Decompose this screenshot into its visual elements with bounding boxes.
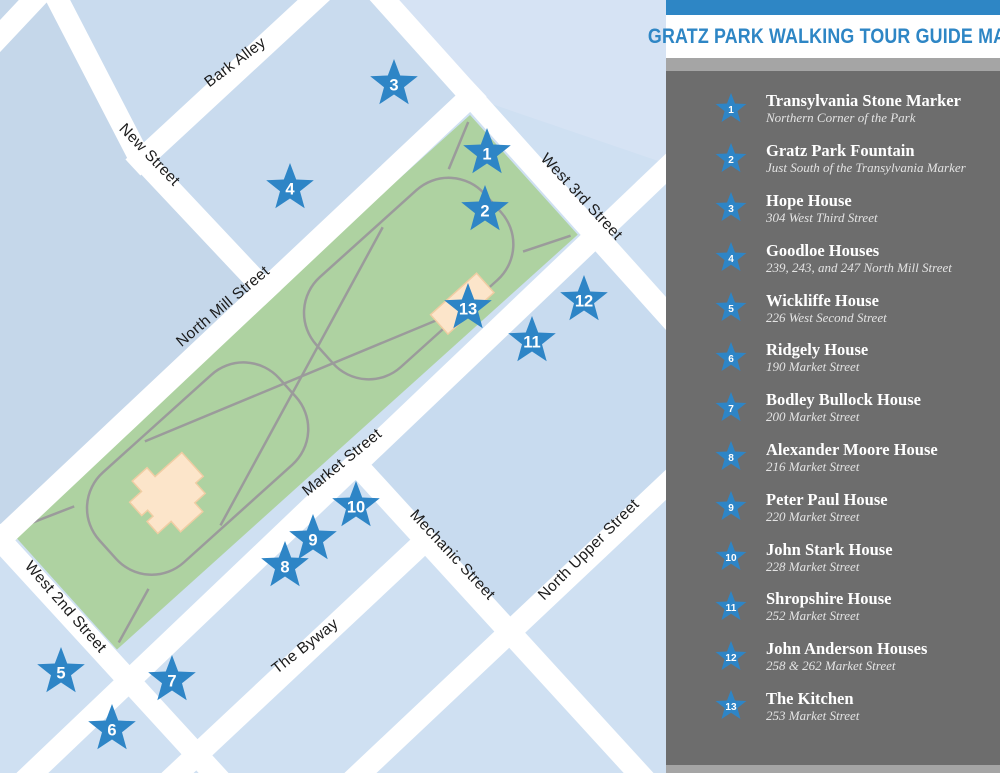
legend-star-icon: 10 [710, 535, 752, 579]
legend-item-subtitle: Northern Corner of the Park [766, 110, 961, 126]
map-marker-7-number: 7 [167, 673, 176, 691]
legend-star-icon: 4 [710, 236, 752, 280]
legend-item-subtitle: 226 West Second Street [766, 310, 887, 326]
legend-star-icon: 13 [710, 684, 752, 728]
legend-item-title: John Stark House [766, 540, 893, 559]
legend-item-title: Alexander Moore House [766, 440, 938, 459]
legend-item-9: 9 Peter Paul House220 Market Street [666, 482, 1000, 532]
legend-item-12: 12 John Anderson Houses258 & 262 Market … [666, 632, 1000, 682]
legend-item-7: 7 Bodley Bullock House200 Market Street [666, 383, 1000, 433]
legend-item-title: Wickliffe House [766, 291, 887, 310]
legend-star-icon: 1 [710, 87, 752, 131]
legend-item-title: Shropshire House [766, 589, 891, 608]
gratz-park-guide: Bark Alley New Street West 3rd Street No… [0, 0, 1000, 773]
legend-star-icon: 2 [710, 137, 752, 181]
legend-item-subtitle: 258 & 262 Market Street [766, 658, 927, 674]
legend-star-icon: 7 [710, 386, 752, 430]
legend-item-subtitle: 253 Market Street [766, 708, 859, 724]
map-marker-13-number: 13 [459, 301, 477, 319]
legend-item-title: Hope House [766, 191, 878, 210]
legend-item-2: 2 Gratz Park FountainJust South of the T… [666, 134, 1000, 184]
legend-star-number: 3 [728, 205, 734, 216]
legend-star-icon: 9 [710, 485, 752, 529]
map-marker-12-number: 12 [575, 293, 593, 311]
legend-item-title: John Anderson Houses [766, 639, 927, 658]
legend-item-title: Peter Paul House [766, 490, 888, 509]
legend-star-number: 8 [728, 454, 734, 465]
panel-top-accent-bar [666, 0, 1000, 15]
legend-item-subtitle: 239, 243, and 247 North Mill Street [766, 260, 952, 276]
map-marker-2-number: 2 [480, 203, 489, 221]
legend-star-icon: 12 [710, 635, 752, 679]
legend-star-number: 9 [728, 503, 734, 514]
legend-panel: GRATZ PARK WALKING TOUR GUIDE MAP 1 Tran… [666, 0, 1000, 773]
legend-item-title: Bodley Bullock House [766, 390, 921, 409]
map-marker-1-number: 1 [482, 146, 491, 164]
legend-item-8: 8 Alexander Moore House216 Market Street [666, 433, 1000, 483]
legend-item-subtitle: 216 Market Street [766, 459, 938, 475]
map-marker-3-number: 3 [389, 77, 398, 95]
legend-item-subtitle: 220 Market Street [766, 509, 888, 525]
map: Bark Alley New Street West 3rd Street No… [0, 0, 666, 773]
map-marker-11-number: 11 [523, 334, 540, 352]
legend-star-number: 4 [728, 254, 734, 265]
map-canvas: Bark Alley New Street West 3rd Street No… [0, 0, 666, 773]
legend-item-3: 3 Hope House304 West Third Street [666, 184, 1000, 234]
legend-item-subtitle: 190 Market Street [766, 359, 868, 375]
legend-item-subtitle: 200 Market Street [766, 409, 921, 425]
legend-item-11: 11 Shropshire House252 Market Street [666, 582, 1000, 632]
legend-item-subtitle: 304 West Third Street [766, 210, 878, 226]
legend-item-title: Transylvania Stone Marker [766, 91, 961, 110]
panel-divider-top [666, 58, 1000, 71]
map-marker-9-number: 9 [308, 532, 317, 550]
legend-item-title: Gratz Park Fountain [766, 141, 966, 160]
legend-star-number: 12 [725, 653, 737, 664]
page-title: GRATZ PARK WALKING TOUR GUIDE MAP [648, 24, 1000, 49]
legend-item-subtitle: 252 Market Street [766, 608, 891, 624]
legend-item-10: 10 John Stark House228 Market Street [666, 532, 1000, 582]
legend-star-number: 2 [728, 155, 734, 166]
legend-star-icon: 11 [710, 585, 752, 629]
legend-item-subtitle: Just South of the Transylvania Marker [766, 160, 966, 176]
map-marker-6-number: 6 [107, 722, 116, 740]
panel-divider-bottom [666, 765, 1000, 773]
legend-star-icon: 5 [710, 286, 752, 330]
map-marker-10-number: 10 [347, 499, 365, 517]
legend-star-number: 6 [728, 354, 734, 365]
legend-list: 1 Transylvania Stone MarkerNorthern Corn… [666, 71, 1000, 731]
legend-item-title: The Kitchen [766, 689, 859, 708]
legend-item-6: 6 Ridgely House190 Market Street [666, 333, 1000, 383]
legend-star-number: 5 [728, 304, 734, 315]
legend-item-1: 1 Transylvania Stone MarkerNorthern Corn… [666, 84, 1000, 134]
legend-star-icon: 8 [710, 435, 752, 479]
panel-title-band: GRATZ PARK WALKING TOUR GUIDE MAP [666, 15, 1000, 58]
legend-item-title: Ridgely House [766, 340, 868, 359]
legend-star-number: 1 [728, 105, 734, 116]
legend-star-icon: 3 [710, 186, 752, 230]
legend-star-number: 13 [725, 702, 737, 713]
legend-item-4: 4 Goodloe Houses239, 243, and 247 North … [666, 233, 1000, 283]
map-marker-5-number: 5 [56, 665, 65, 683]
legend-item-subtitle: 228 Market Street [766, 559, 893, 575]
legend-star-icon: 6 [710, 336, 752, 380]
map-marker-8-number: 8 [280, 559, 289, 577]
legend-item-5: 5 Wickliffe House226 West Second Street [666, 283, 1000, 333]
legend-item-title: Goodloe Houses [766, 241, 952, 260]
legend-star-number: 10 [725, 553, 737, 564]
legend-item-13: 13 The Kitchen253 Market Street [666, 682, 1000, 732]
legend-star-number: 11 [726, 603, 737, 614]
legend-star-number: 7 [728, 404, 734, 415]
map-marker-4-number: 4 [285, 181, 295, 199]
